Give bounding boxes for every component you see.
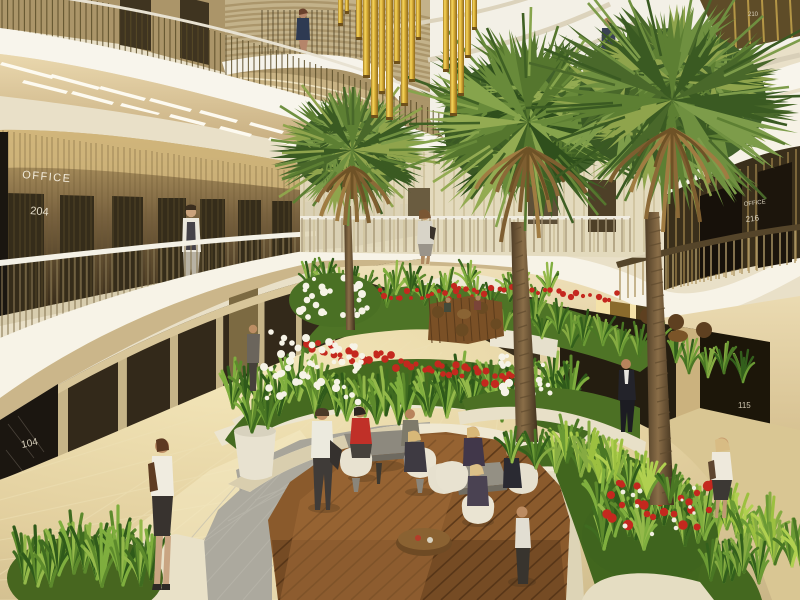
svg-text:204: 204 <box>30 205 49 219</box>
svg-text:115: 115 <box>738 401 751 410</box>
svg-text:210: 210 <box>748 12 759 18</box>
svg-text:216: 216 <box>745 213 760 224</box>
